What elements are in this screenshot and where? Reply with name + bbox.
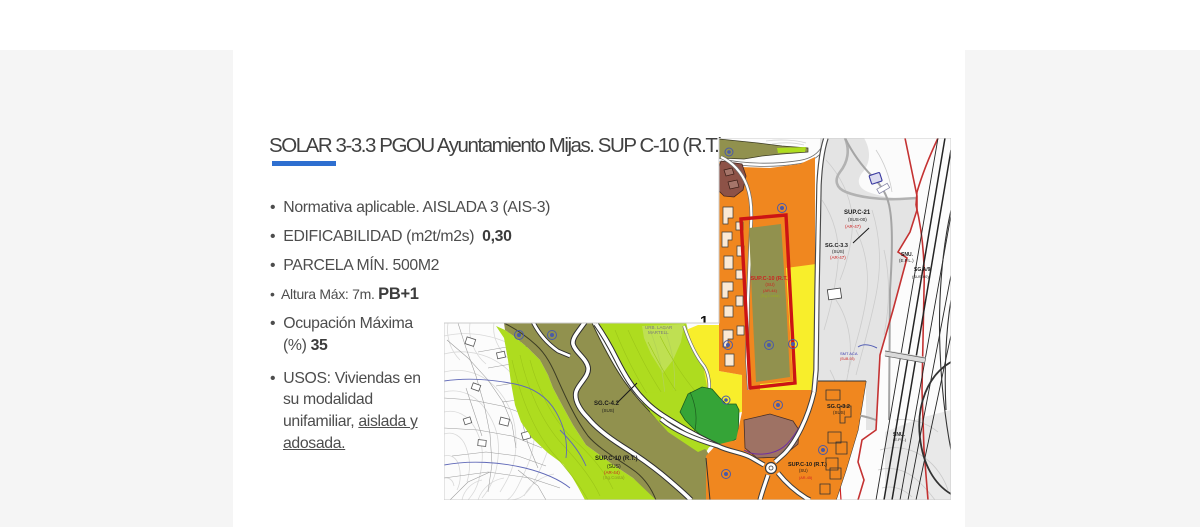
svg-text:(SUS): (SUS) (832, 249, 845, 254)
svg-text:(AR-45): (AR-45) (799, 476, 813, 480)
svg-text:(AR-47): (AR-47) (830, 255, 846, 260)
svg-text:SG.A/9: SG.A/9 (914, 267, 931, 273)
svg-text:(E.P.L.): (E.P.L.) (899, 258, 914, 263)
svg-text:(SUS-00): (SUS-00) (848, 217, 867, 222)
svg-text:SUP.C-21: SUP.C-21 (844, 210, 871, 216)
svg-text:(Sg.Costa): (Sg.Costa) (760, 293, 780, 298)
svg-text:MARTELL: MARTELL (648, 330, 669, 335)
svg-text:SUP.C-10 (R.T.): SUP.C-10 (R.T.) (595, 456, 638, 462)
svg-text:(SUS): (SUS) (833, 410, 846, 415)
svg-text:(SUS): (SUS) (602, 408, 615, 413)
svg-text:(SUS-00): (SUS-00) (912, 274, 929, 279)
svg-text:SG.C-4.2: SG.C-4.2 (594, 401, 620, 407)
svg-text:(SU): (SU) (799, 468, 808, 473)
svg-text:(SU): (SU) (765, 282, 775, 287)
svg-text:(Sg.Costa): (Sg.Costa) (603, 475, 625, 480)
svg-text:(AR-47): (AR-47) (845, 224, 861, 229)
svg-text:SMT ACA: SMT ACA (840, 351, 858, 356)
svg-text:(SUB-93): (SUB-93) (840, 357, 855, 361)
svg-text:(E.P.L.): (E.P.L.) (893, 437, 907, 442)
